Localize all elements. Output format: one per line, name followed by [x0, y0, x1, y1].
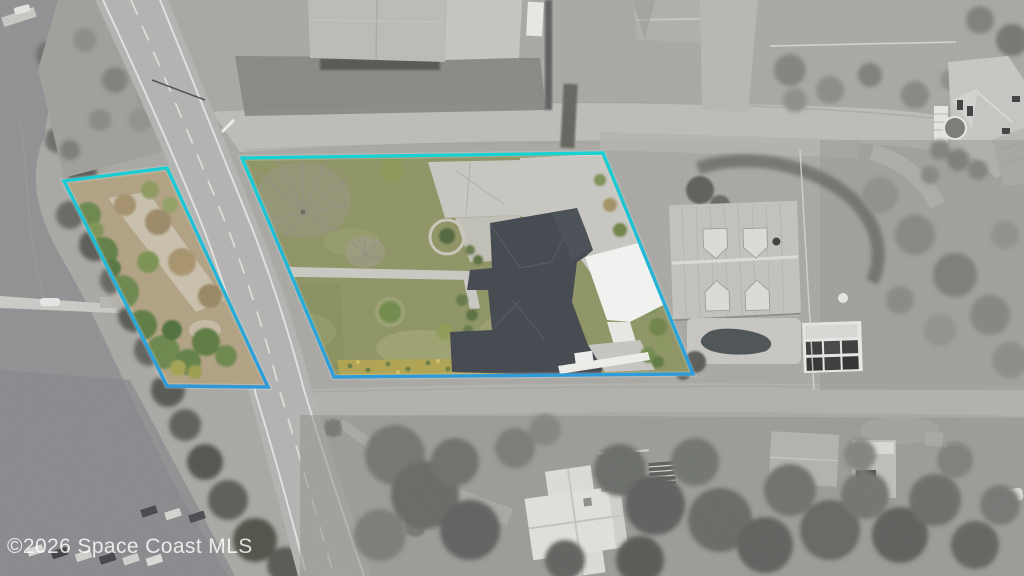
- photo-grain: [0, 0, 1024, 576]
- aerial-photo-canvas: [0, 0, 1024, 576]
- aerial-photo: ©2026 Space Coast MLS: [0, 0, 1024, 576]
- mls-watermark: ©2026 Space Coast MLS: [7, 535, 253, 559]
